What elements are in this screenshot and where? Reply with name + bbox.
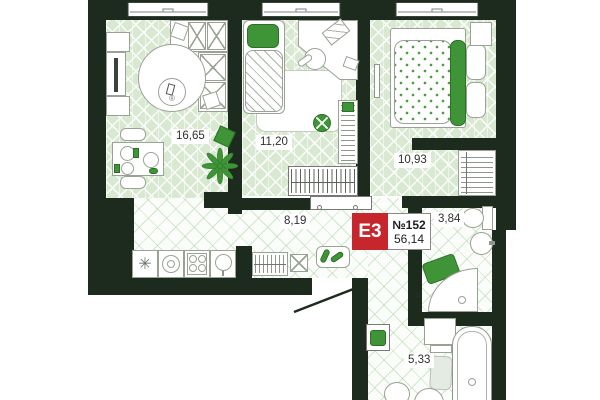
plate xyxy=(121,162,134,175)
flat-total-area: 56,14 xyxy=(394,232,424,246)
closet-hangers xyxy=(458,150,496,196)
shower-drain xyxy=(458,296,466,304)
sofa-cushion xyxy=(188,22,206,50)
bed-pillow xyxy=(466,82,486,118)
dining-chair xyxy=(120,176,146,189)
wall-tv-icon xyxy=(374,64,380,98)
napkin xyxy=(133,148,139,158)
teapot-icon xyxy=(143,152,159,168)
basin-tap xyxy=(489,241,495,245)
wardrobe-hangers xyxy=(252,252,288,276)
stool xyxy=(313,114,331,132)
napkin xyxy=(114,164,120,173)
floor-plan: ® xyxy=(0,0,600,400)
bed-runner xyxy=(450,40,466,126)
cabinet-drawer xyxy=(430,345,452,353)
tv-stand-bottom xyxy=(106,96,130,116)
toilet-bowl-bottom xyxy=(384,382,410,400)
bed-pillow xyxy=(247,24,279,48)
door-roller xyxy=(317,205,322,210)
tv-stand-top xyxy=(106,32,130,52)
fridge-icon: ✳ xyxy=(132,250,158,278)
flat-badge[interactable]: E3 №152 56,14 xyxy=(352,213,431,250)
kitchen-sink-icon xyxy=(210,250,236,278)
bed-mattress xyxy=(245,50,283,112)
plant-icon xyxy=(201,147,239,185)
sofa-cushion xyxy=(207,22,226,50)
room-area-label-wc: 3,84 xyxy=(434,212,464,227)
bed-blanket xyxy=(394,40,452,124)
bathtub-drain xyxy=(468,378,476,386)
room-area-label-bathroom: 5,33 xyxy=(404,353,434,368)
bath-cabinet xyxy=(424,318,456,345)
toilet-bowl xyxy=(462,208,484,228)
room-area-label-living: 16,65 xyxy=(172,129,209,144)
door-roller xyxy=(353,205,358,210)
ladder-ball xyxy=(342,102,354,112)
flat-type-label: E3 xyxy=(352,213,388,250)
shoe-box xyxy=(290,254,308,272)
stove-icon xyxy=(184,250,210,278)
water-heater xyxy=(370,330,386,346)
room-area-label-bedroom: 10,93 xyxy=(394,153,431,168)
room-area-label-hall: 8,19 xyxy=(280,214,310,229)
bathtub xyxy=(452,326,492,400)
nightstand xyxy=(470,22,492,46)
garnish xyxy=(149,168,158,174)
tv-icon xyxy=(114,58,118,92)
piano xyxy=(288,166,358,196)
room-area-label-child: 11,20 xyxy=(256,135,292,150)
washer-icon xyxy=(158,250,184,278)
dining-chair xyxy=(120,128,146,141)
flat-number: №152 xyxy=(392,218,425,232)
bed-pillow xyxy=(466,44,486,80)
registered-mark: ® xyxy=(169,94,175,103)
